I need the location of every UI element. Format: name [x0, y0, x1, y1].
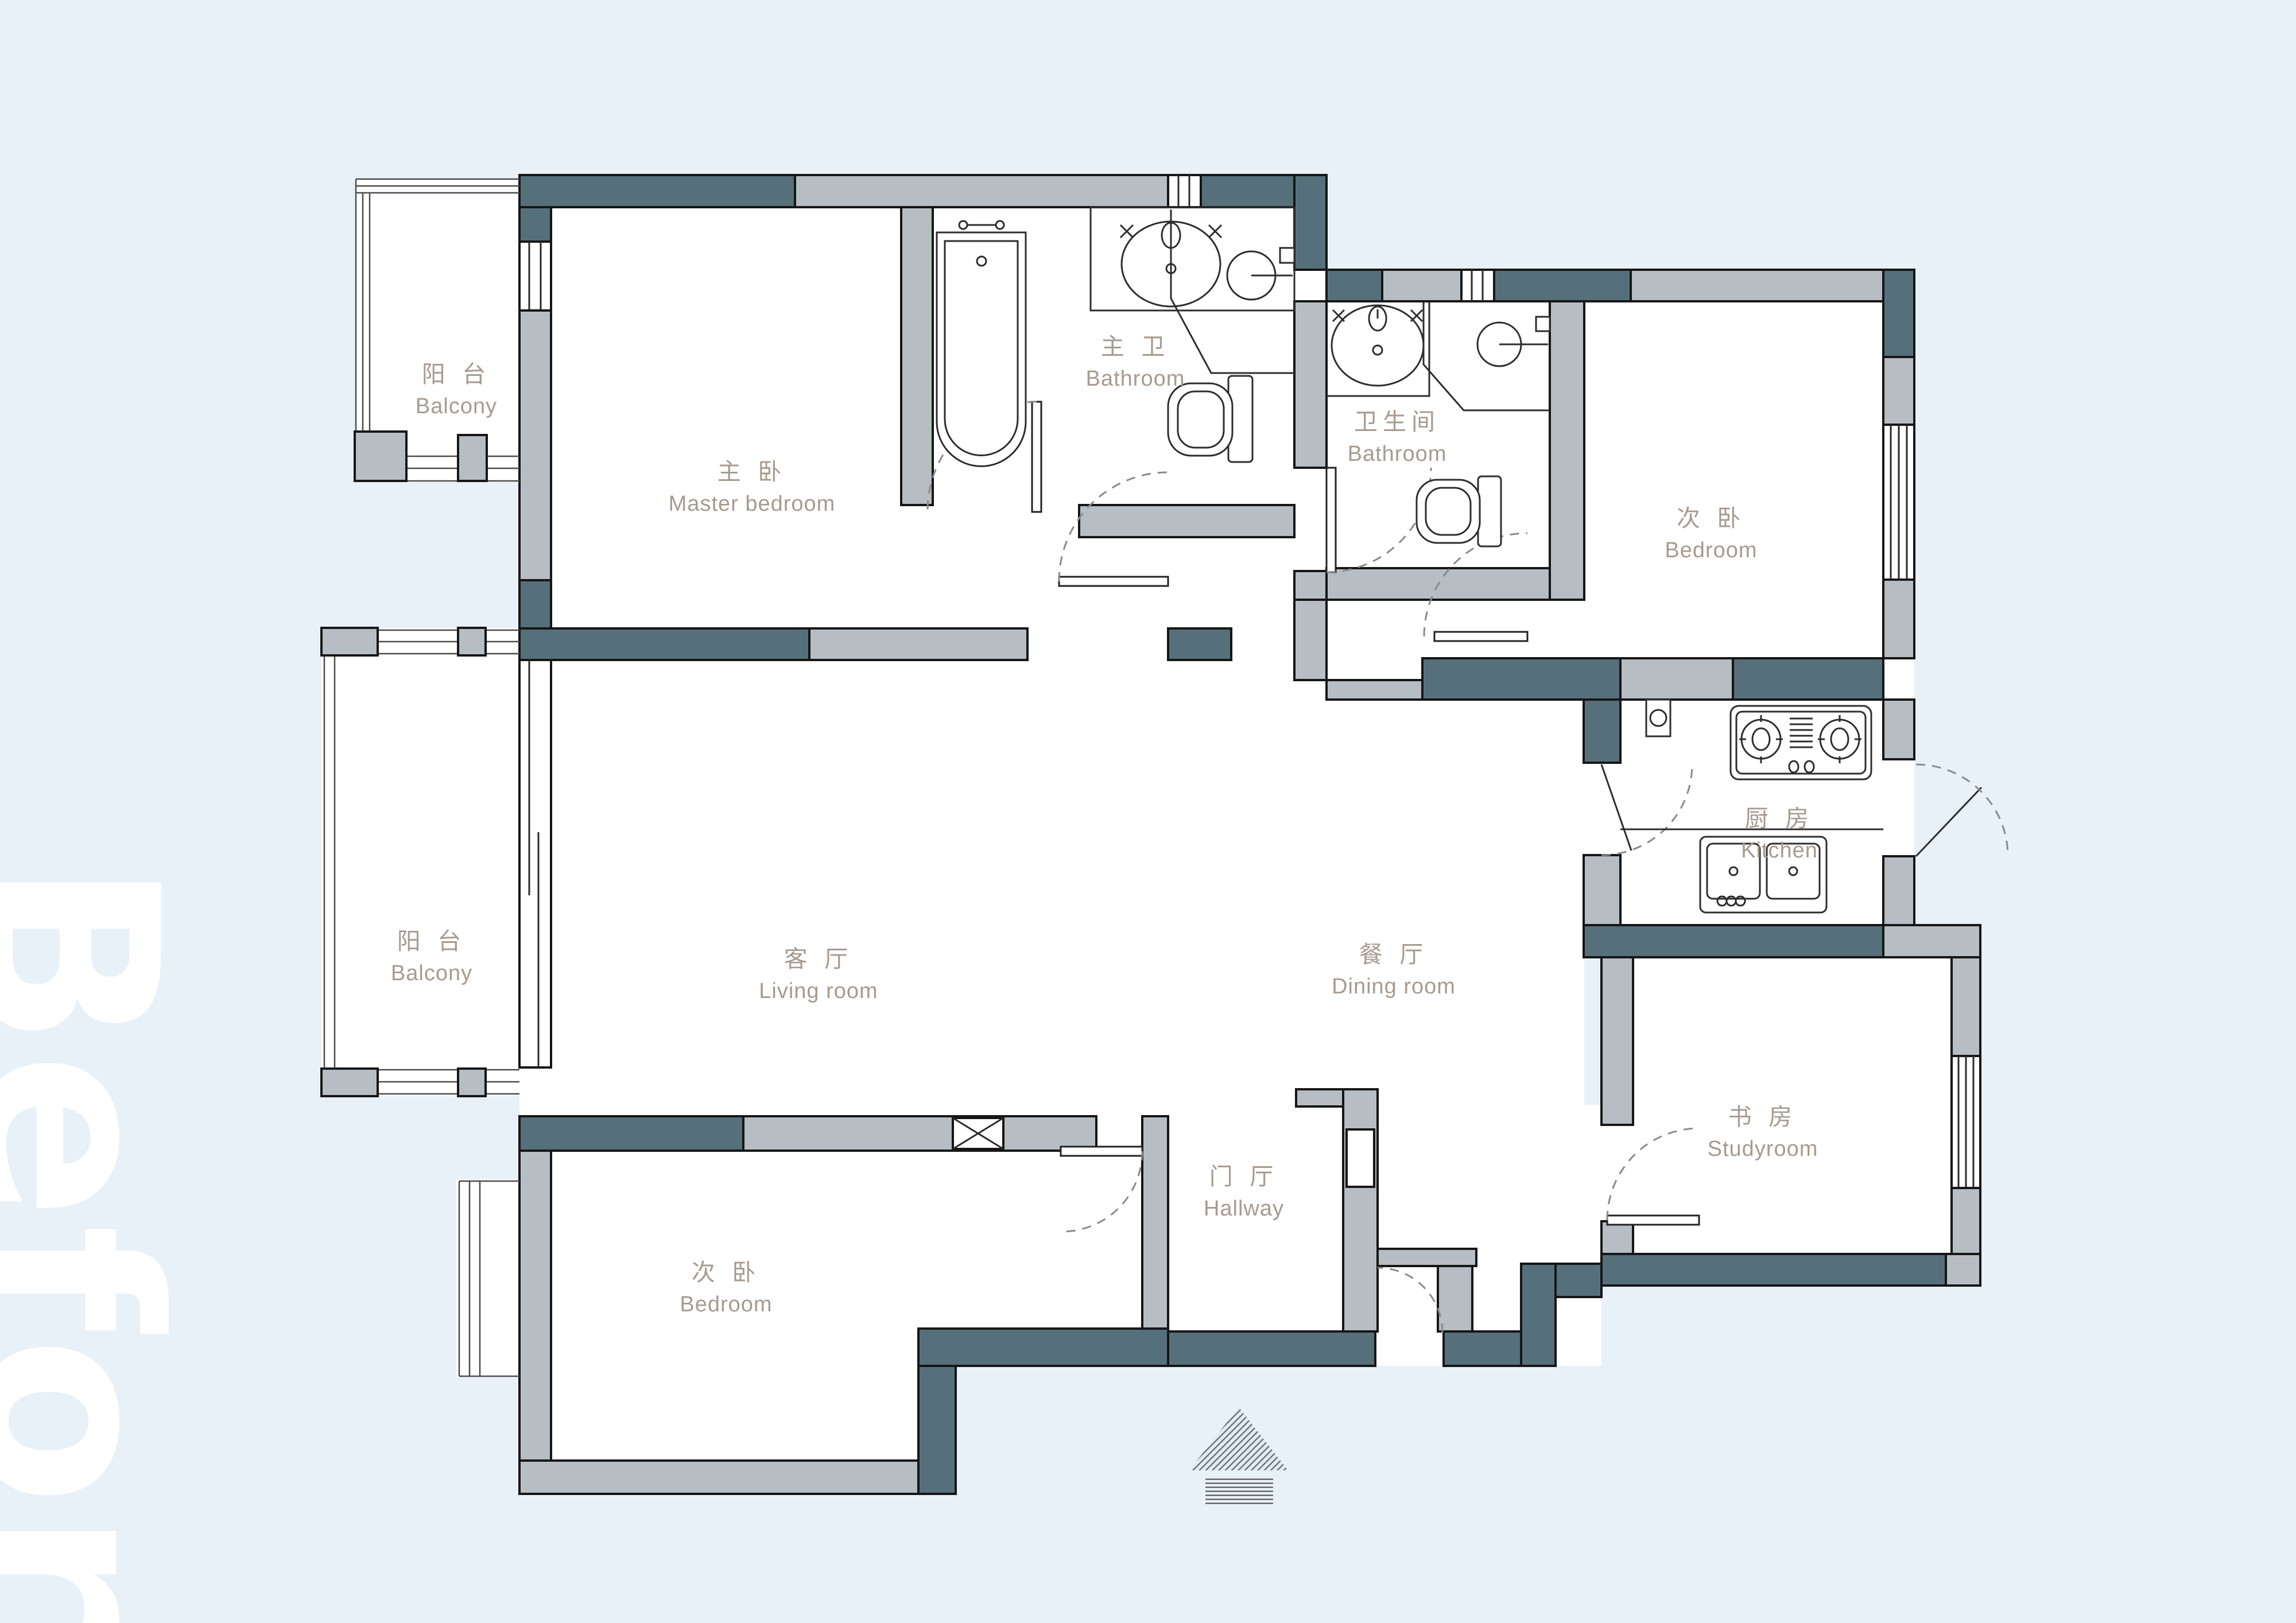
- svg-text:门 厅: 门 厅: [1209, 1163, 1278, 1190]
- svg-text:客 厅: 客 厅: [784, 946, 853, 972]
- svg-text:次 卧: 次 卧: [1677, 505, 1746, 531]
- svg-text:Balcony: Balcony: [416, 394, 497, 418]
- svg-text:次 卧: 次 卧: [692, 1259, 761, 1286]
- svg-text:主 卧: 主 卧: [717, 459, 786, 485]
- svg-text:阳 台: 阳 台: [422, 361, 491, 387]
- svg-text:Bathroom: Bathroom: [1086, 367, 1185, 391]
- svg-text:Kitchen: Kitchen: [1741, 838, 1818, 863]
- floorplan-drawing: 阳 台 Balcony 主 卧 Master bedroom 主 卫 Bathr…: [0, 0, 2296, 1623]
- svg-text:餐 厅: 餐 厅: [1359, 941, 1428, 968]
- svg-text:Bedroom: Bedroom: [680, 1292, 772, 1317]
- beam-cross-icon: [953, 1118, 1003, 1149]
- toilet-icon: [1417, 476, 1501, 546]
- svg-text:书 房: 书 房: [1728, 1104, 1797, 1130]
- svg-text:阳 台: 阳 台: [397, 928, 466, 954]
- svg-text:Living room: Living room: [759, 979, 878, 1003]
- svg-text:Bathroom: Bathroom: [1348, 442, 1447, 466]
- svg-text:Master bedroom: Master bedroom: [669, 492, 836, 516]
- water-heater-icon: [1646, 700, 1670, 736]
- svg-text:厨 房: 厨 房: [1745, 805, 1814, 832]
- svg-text:Balcony: Balcony: [391, 961, 472, 985]
- svg-text:Bedroom: Bedroom: [1665, 538, 1757, 562]
- svg-text:Hallway: Hallway: [1204, 1197, 1284, 1221]
- bathtub-icon: [937, 221, 1026, 466]
- before-watermark: Before: [0, 860, 189, 1623]
- svg-text:卫生间: 卫生间: [1354, 409, 1440, 435]
- svg-text:Dining room: Dining room: [1332, 974, 1456, 999]
- flue-icon: [1347, 1129, 1374, 1187]
- svg-text:Studyroom: Studyroom: [1708, 1137, 1818, 1161]
- stove-icon: [1731, 706, 1871, 779]
- floorplan-page: 阳 台 Balcony 主 卧 Master bedroom 主 卫 Bathr…: [0, 0, 2296, 1623]
- svg-text:主 卫: 主 卫: [1101, 333, 1170, 360]
